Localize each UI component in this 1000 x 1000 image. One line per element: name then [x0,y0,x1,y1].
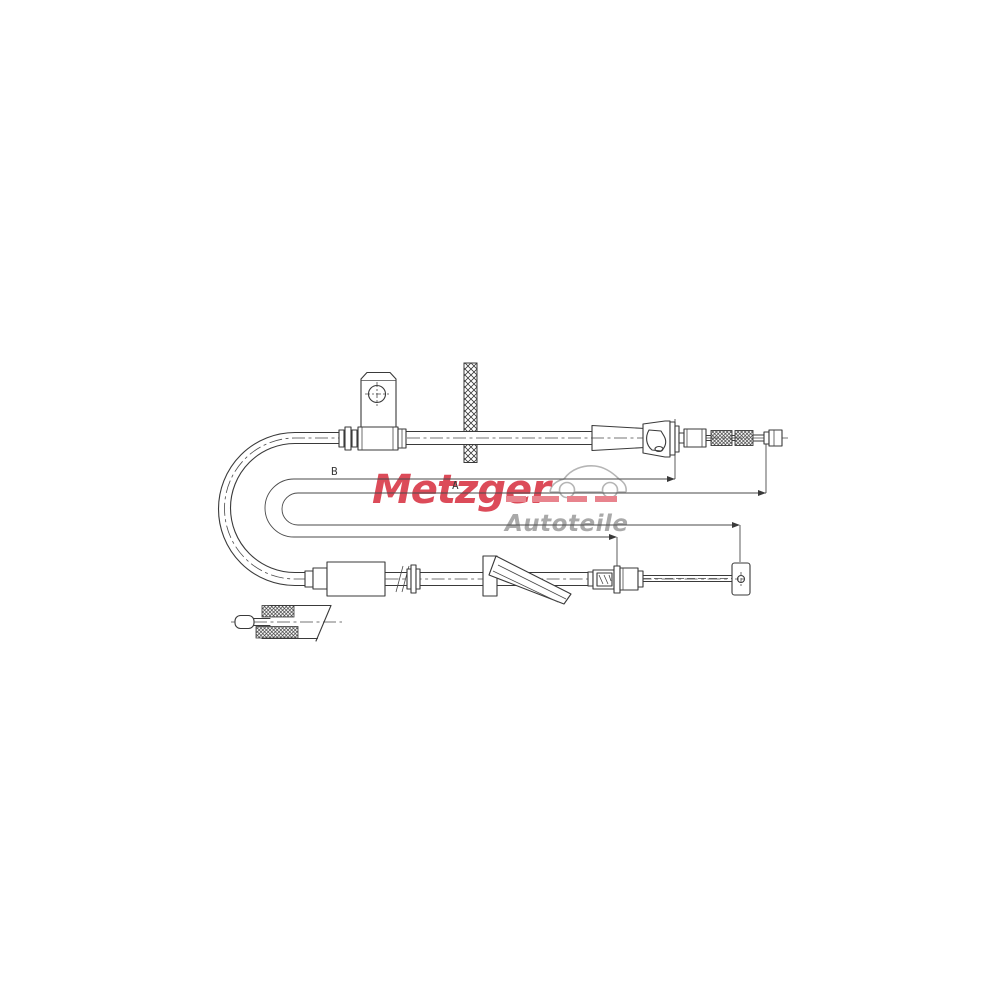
brake-end-fitting [588,566,643,593]
car-rear-wheel [603,483,618,498]
mounting-bracket [361,373,396,428]
rubber-boot [489,556,571,604]
underscore-dash [567,496,587,502]
dimension-b-label: B [331,465,338,478]
thread-end-cap [769,430,782,446]
ferrule-ring [345,427,351,450]
fitting-flange [614,566,620,593]
coil-band-bottom [256,627,298,639]
bracket-barrel [358,427,398,450]
cable-nipple [235,616,254,629]
thread-collar [764,432,769,444]
coil-band-top [262,606,294,618]
brake-cable-technical-drawing: Metzger Autoteile B A [0,0,1000,1000]
return-spring [711,431,753,446]
product-image: Metzger Autoteile B A [0,0,1000,1000]
dimension-a-label: A [452,479,459,492]
step-fitting-small [305,571,313,587]
cable-end-detail-view [231,606,342,642]
car-front-wheel [560,483,575,498]
connector-stub [679,433,684,443]
upper-cable-run [339,363,782,463]
clevis-flange [670,422,675,455]
arrowhead [732,522,740,528]
cable-end-block [732,563,750,595]
ferrule-ring [339,430,344,447]
u-bend-inner-wall [230,444,352,573]
brand-wordmark: Metzger [372,467,553,513]
fitting-step-2 [638,571,643,587]
arrowhead [667,476,675,482]
ring-fitting [416,569,420,589]
lower-cable-run [305,556,750,604]
ring-fitting [411,565,416,593]
ring-fitting [407,569,411,589]
brand-subtitle: Autoteile [503,511,628,537]
spring-coil-block [735,431,753,446]
fitting-step [588,572,593,586]
ferrule-ring [352,430,357,447]
equalizer-clevis [643,421,679,457]
boot-cone [489,556,571,604]
underscore-dash [595,496,617,502]
underscore-dash [532,496,559,502]
spring-coil-block [711,431,732,446]
step-fitting-large [313,568,327,589]
grommet-block [327,562,385,596]
clevis-flange-2 [675,426,679,452]
metzger-logo: Metzger Autoteile [372,466,628,537]
firewall-grommet-plate-lower [464,445,477,463]
threaded-end-fitting [764,430,782,446]
underscore-dash [506,496,526,502]
arrowhead [758,490,766,496]
firewall-grommet-plate [464,363,477,432]
brand-underscore-dashes [506,496,617,502]
